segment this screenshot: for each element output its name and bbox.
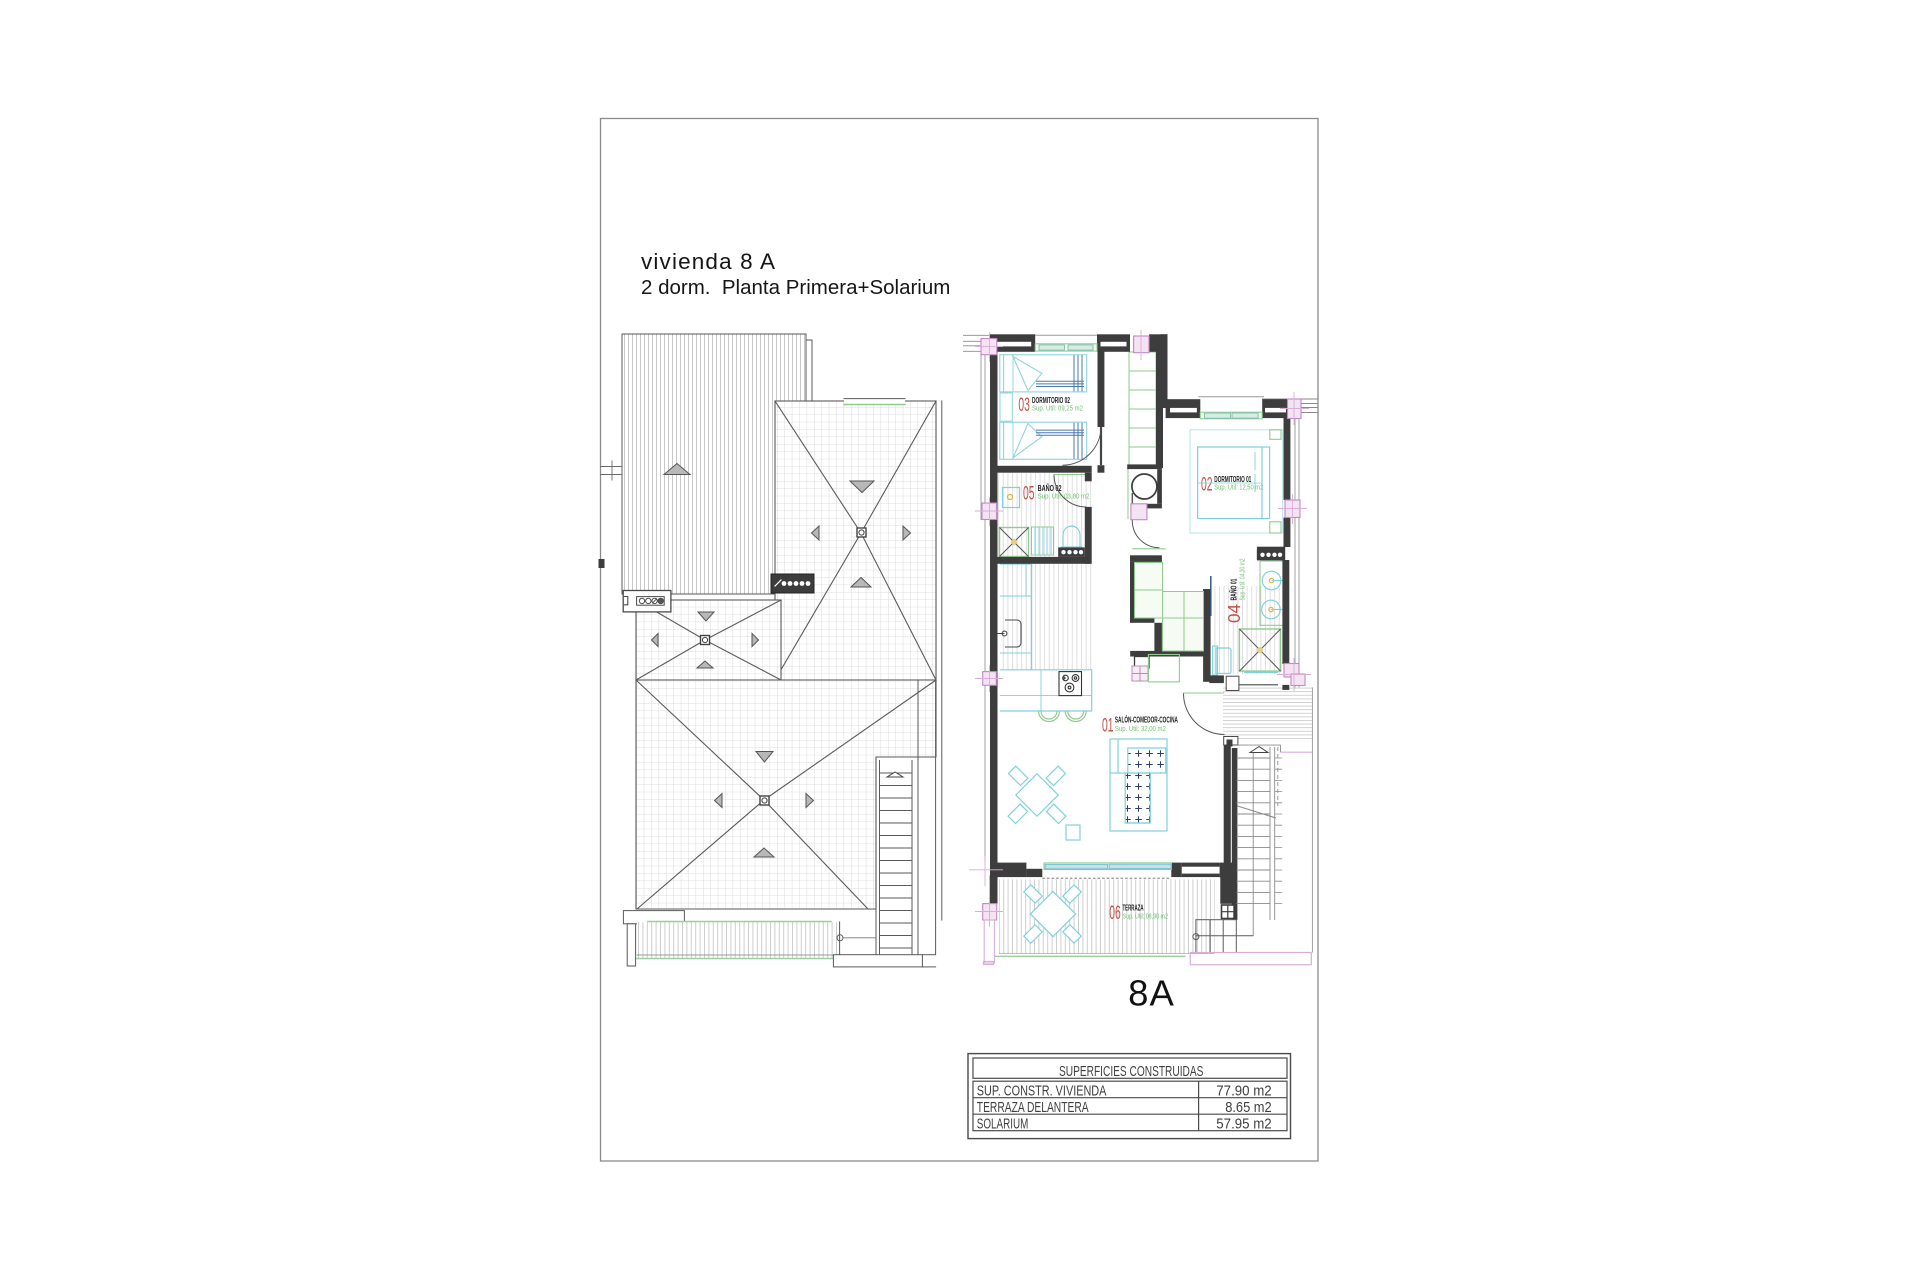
svg-text:Sup. Util: 09,25 m2: Sup. Util: 09,25 m2 xyxy=(1032,403,1083,412)
svg-text:2 dorm. Planta Primera+Solari: 2 dorm. Planta Primera+Solarium xyxy=(641,276,950,299)
svg-text:02: 02 xyxy=(1201,474,1213,495)
svg-text:vivienda 8 A: vivienda 8 A xyxy=(641,249,776,274)
svg-text:03: 03 xyxy=(1018,395,1030,416)
svg-text:SUPERFICIES CONSTRUIDAS: SUPERFICIES CONSTRUIDAS xyxy=(1059,1064,1204,1080)
svg-text:01: 01 xyxy=(1102,716,1114,737)
svg-text:8.65 m2: 8.65 m2 xyxy=(1225,1100,1272,1116)
svg-text:TERRAZA DELANTERA: TERRAZA DELANTERA xyxy=(977,1100,1089,1116)
svg-text:SUP. CONSTR. VIVIENDA: SUP. CONSTR. VIVIENDA xyxy=(977,1084,1107,1100)
svg-text:SALÓN-COMEDOR-COCINA: SALÓN-COMEDOR-COCINA xyxy=(1115,715,1178,724)
svg-text:57.95 m2: 57.95 m2 xyxy=(1216,1117,1271,1133)
svg-text:05: 05 xyxy=(1023,483,1035,504)
svg-text:8A: 8A xyxy=(1128,973,1175,1014)
svg-text:Sup. Util: 08,90 m2: Sup. Util: 08,90 m2 xyxy=(1123,912,1169,921)
svg-text:Sup. Util: 12,50 m2: Sup. Util: 12,50 m2 xyxy=(1214,483,1263,492)
svg-text:Sup. Util: 03,80 m2: Sup. Util: 03,80 m2 xyxy=(1038,492,1090,501)
svg-text:Sup. Util: 04,30 m2: Sup. Util: 04,30 m2 xyxy=(1238,559,1247,601)
svg-text:Sup. Util: 32,00 m2: Sup. Util: 32,00 m2 xyxy=(1115,724,1166,733)
svg-text:04: 04 xyxy=(1224,604,1244,623)
svg-text:SOLARIUM: SOLARIUM xyxy=(977,1117,1029,1133)
svg-text:06: 06 xyxy=(1109,903,1121,924)
svg-text:77.90 m2: 77.90 m2 xyxy=(1216,1084,1271,1100)
